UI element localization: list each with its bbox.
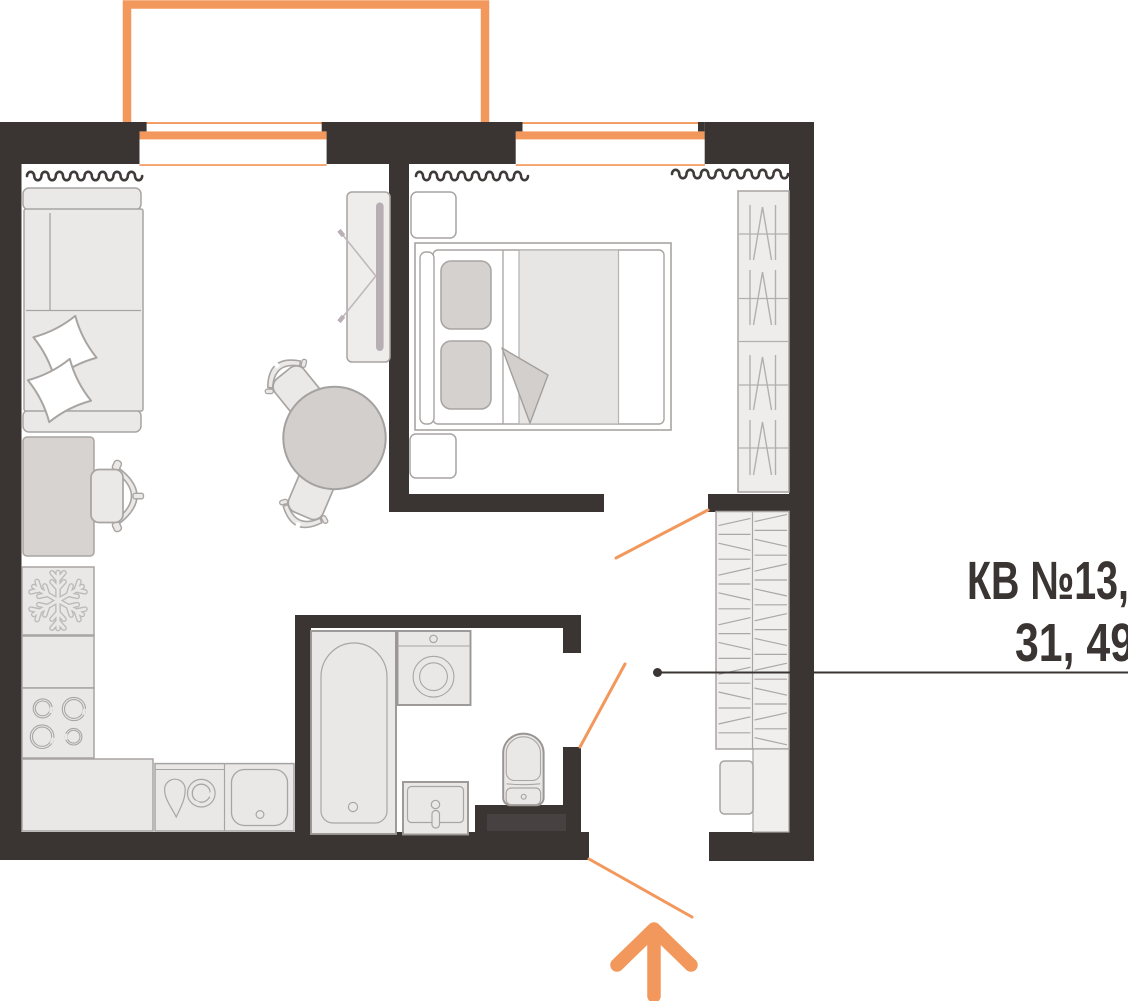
svg-text:31, 49: 31, 49	[1015, 613, 1128, 673]
svg-text:КВ №13,: КВ №13,	[967, 551, 1128, 611]
